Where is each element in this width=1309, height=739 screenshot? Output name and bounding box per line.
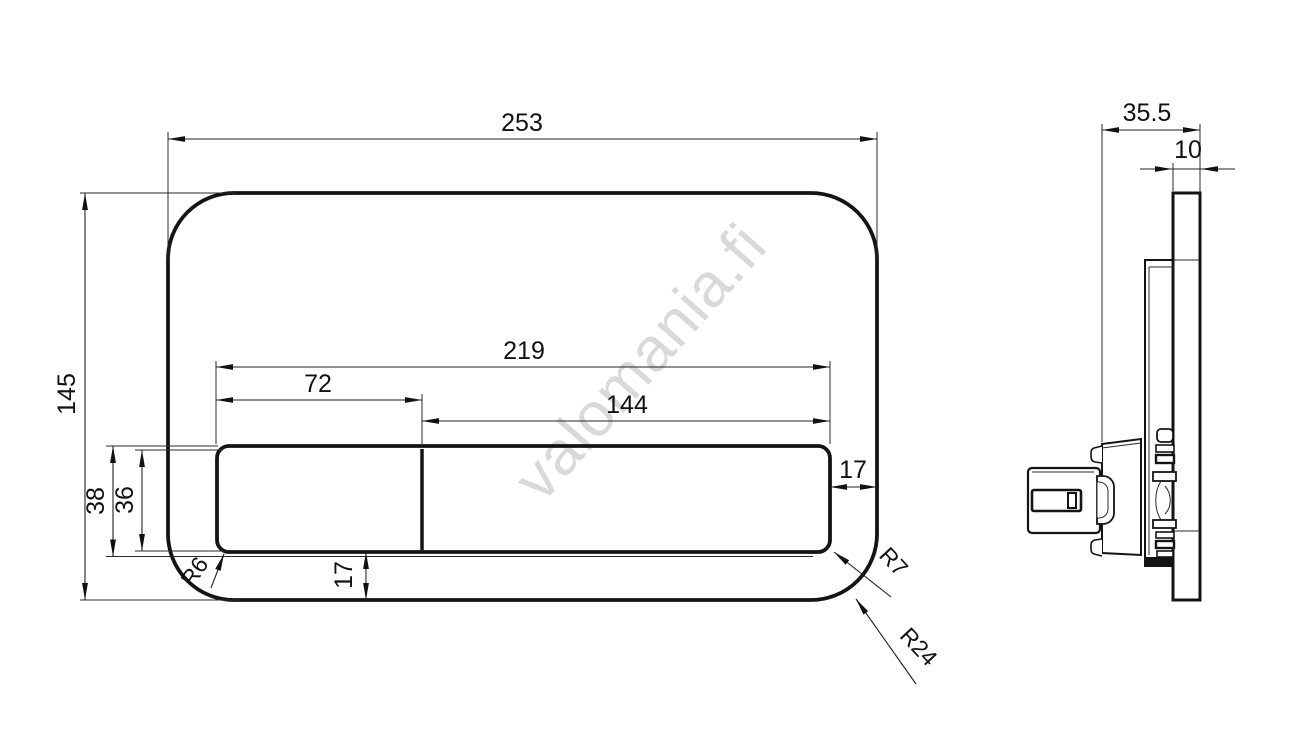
dim-left-button-width: 72 xyxy=(216,370,422,447)
side-slot-bar xyxy=(1068,493,1076,508)
side-clip-top xyxy=(1091,446,1102,463)
dim-label-253: 253 xyxy=(501,109,543,137)
dim-label-144: 144 xyxy=(606,391,648,419)
technical-drawing-page: valomania.fi 253 145 219 xyxy=(0,0,1309,739)
radius-label-r7: R7 xyxy=(874,542,913,581)
dim-label-36: 36 xyxy=(111,486,139,514)
dim-label-35-5: 35.5 xyxy=(1123,99,1172,127)
side-boss-inner xyxy=(1097,482,1108,518)
dim-overall-height: 145 xyxy=(53,193,240,600)
dim-label-219: 219 xyxy=(503,337,545,365)
dim-label-17-right: 17 xyxy=(839,456,867,484)
dim-label-10: 10 xyxy=(1174,136,1202,164)
radius-leader-r6: R6 xyxy=(175,552,224,591)
dim-plate-thickness: 10 xyxy=(1140,136,1235,191)
dim-overall-width: 253 xyxy=(168,109,877,262)
dim-right-button-width: 144 xyxy=(422,391,830,421)
dim-label-145: 145 xyxy=(53,373,81,415)
dim-label-72: 72 xyxy=(304,370,332,398)
dim-label-38: 38 xyxy=(82,487,110,515)
dim-button-bottom-gap: 17 xyxy=(330,552,366,600)
front-view: 253 145 219 72 144 xyxy=(53,109,943,684)
flush-plate-drawing: valomania.fi 253 145 219 xyxy=(0,0,1309,739)
side-frame-bottom-band xyxy=(1145,557,1173,566)
dim-button-right-gap: 17 xyxy=(830,456,877,487)
side-clip-bottom xyxy=(1091,539,1102,556)
side-plate-panel xyxy=(1173,193,1200,600)
side-view: 35.5 10 xyxy=(1028,99,1235,600)
dim-label-17-bottom: 17 xyxy=(330,561,358,589)
radius-label-r6: R6 xyxy=(175,552,213,591)
radius-leader-r24: R24 xyxy=(856,599,943,684)
